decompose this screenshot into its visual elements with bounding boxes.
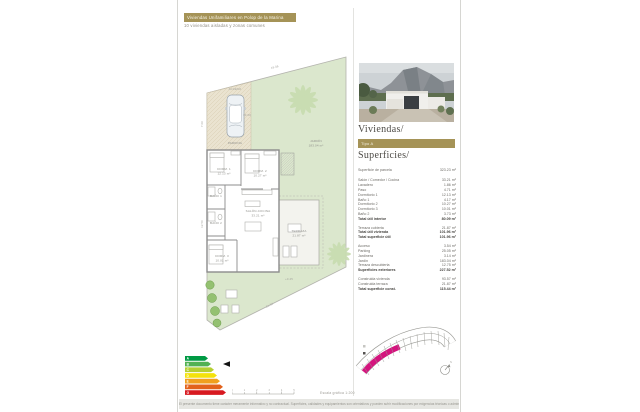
scale-number: 1 xyxy=(244,390,246,392)
plan-label: ACCESO xyxy=(229,87,242,91)
plan-label: BAÑO 1 xyxy=(210,193,222,198)
plan-label: DORM. 1 xyxy=(217,167,231,171)
scale-number: 0 xyxy=(232,390,233,392)
superficies-row: Superficie de parcela323.23 m² xyxy=(358,168,456,173)
plan-label: 33.21 m² xyxy=(251,214,264,218)
legend-markers xyxy=(363,345,366,355)
scale-label: Escala gráfica 1:200 xyxy=(320,391,355,395)
energy-bar-D xyxy=(185,373,217,378)
site-plan: N xyxy=(356,322,458,384)
plan-label: 183.04 m² xyxy=(309,144,324,148)
energy-letter: F xyxy=(187,385,189,389)
plan-label: 21.87 m² xyxy=(292,234,305,238)
energy-bar-G xyxy=(185,390,226,395)
plan-label: 10.01 m² xyxy=(215,259,228,263)
scale-numbers: 012345 xyxy=(232,390,295,392)
plan-label: 16.06 xyxy=(270,64,279,70)
floor-plan: DORM. 112.13 m²DORM. 210.27 m²BAÑO 1BAÑO… xyxy=(185,54,351,348)
compass-icon: N xyxy=(441,362,453,375)
project-subtitle: 10 viviendas aisladas y zonas comunes xyxy=(184,23,265,28)
plan-label: +0.45 xyxy=(285,277,293,281)
plan-label: 12.50 xyxy=(200,220,204,228)
energy-letter: E xyxy=(187,380,189,384)
plan-label: 7.06 xyxy=(200,121,204,127)
plan-label: BAÑO 2 xyxy=(210,220,222,225)
plan-label: SALÓN-COCINA xyxy=(246,208,271,213)
energy-bar-C xyxy=(185,367,214,372)
scale-number: 4 xyxy=(281,390,283,392)
plan-label: 12.13 m² xyxy=(217,172,230,176)
superficies-row: Total superficie útil101.96 m² xyxy=(358,235,456,240)
scale-bar: 012345 xyxy=(232,389,298,398)
energy-rating-marker xyxy=(223,361,230,367)
superficies-table: Superficie de parcela323.23 m²Salón / Co… xyxy=(358,168,456,295)
energy-bar-E xyxy=(185,379,220,384)
column-divider xyxy=(353,8,354,396)
plan-label: ±0.00 xyxy=(243,113,251,117)
energy-chart: ABCDEFG xyxy=(185,356,237,400)
scale-number: 5 xyxy=(293,390,295,392)
plan-label: TERRAZA xyxy=(291,229,306,233)
superficies-row: Total superficie const.115.44 m² xyxy=(358,287,456,292)
energy-bar-F xyxy=(185,385,223,390)
project-title-banner: Viviendas Unifamiliares en Polop de la M… xyxy=(184,13,296,22)
scale-number: 2 xyxy=(256,390,258,392)
scale-number: 3 xyxy=(269,390,271,392)
plan-label: DORM. 2 xyxy=(253,169,267,173)
footer-disclaimer: El presente documento tiene carácter mer… xyxy=(179,399,459,409)
compass-north-label: N xyxy=(450,362,452,364)
brochure-page: Viviendas Unifamiliares en Polop de la M… xyxy=(0,0,640,412)
plan-label: 10.27 m² xyxy=(253,174,266,178)
superficies-row: Superficies exteriores227.52 m² xyxy=(358,268,456,273)
document-sheet: Viviendas Unifamiliares en Polop de la M… xyxy=(177,0,461,412)
viviendas-heading: Viviendas/ xyxy=(358,124,404,135)
superficies-row: Total útil interior80.09 m² xyxy=(358,217,456,222)
type-banner: Tipo A xyxy=(358,139,455,148)
plan-label: PARKING xyxy=(228,141,243,145)
villa-photo xyxy=(359,63,454,122)
plan-label: DORM. 3 xyxy=(215,254,229,258)
superficies-heading: Superficies/ xyxy=(358,150,409,161)
plan-label: JARDÍN xyxy=(310,139,322,143)
